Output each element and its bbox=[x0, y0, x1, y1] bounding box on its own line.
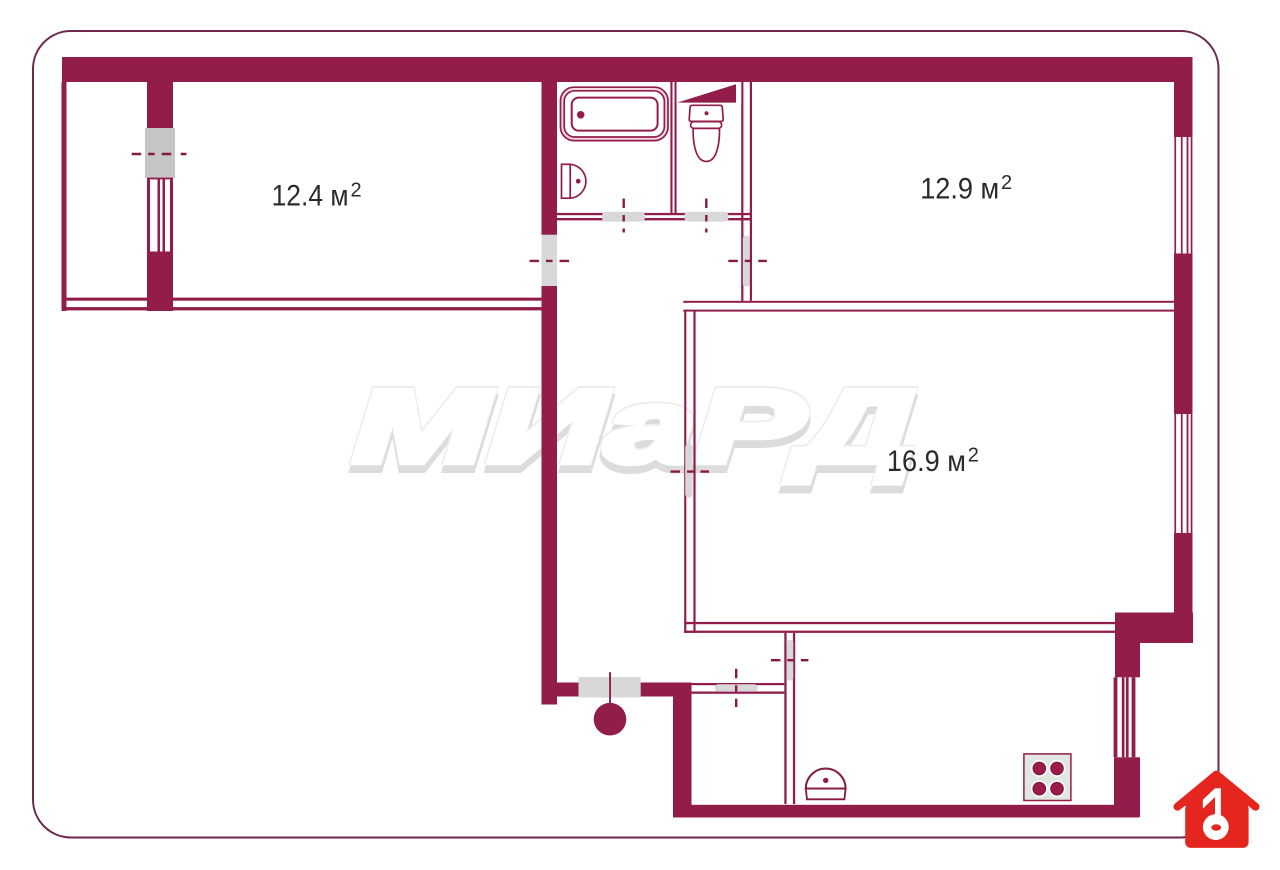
svg-text:2: 2 bbox=[968, 445, 979, 467]
svg-text:2: 2 bbox=[1001, 172, 1012, 194]
svg-text:12.4 м: 12.4 м bbox=[272, 180, 349, 213]
svg-text:16.9 м: 16.9 м bbox=[887, 445, 966, 478]
svg-text:МИаРД: МИаРД bbox=[353, 369, 915, 484]
svg-text:12.9 м: 12.9 м bbox=[920, 172, 999, 205]
svg-text:2: 2 bbox=[351, 179, 362, 201]
